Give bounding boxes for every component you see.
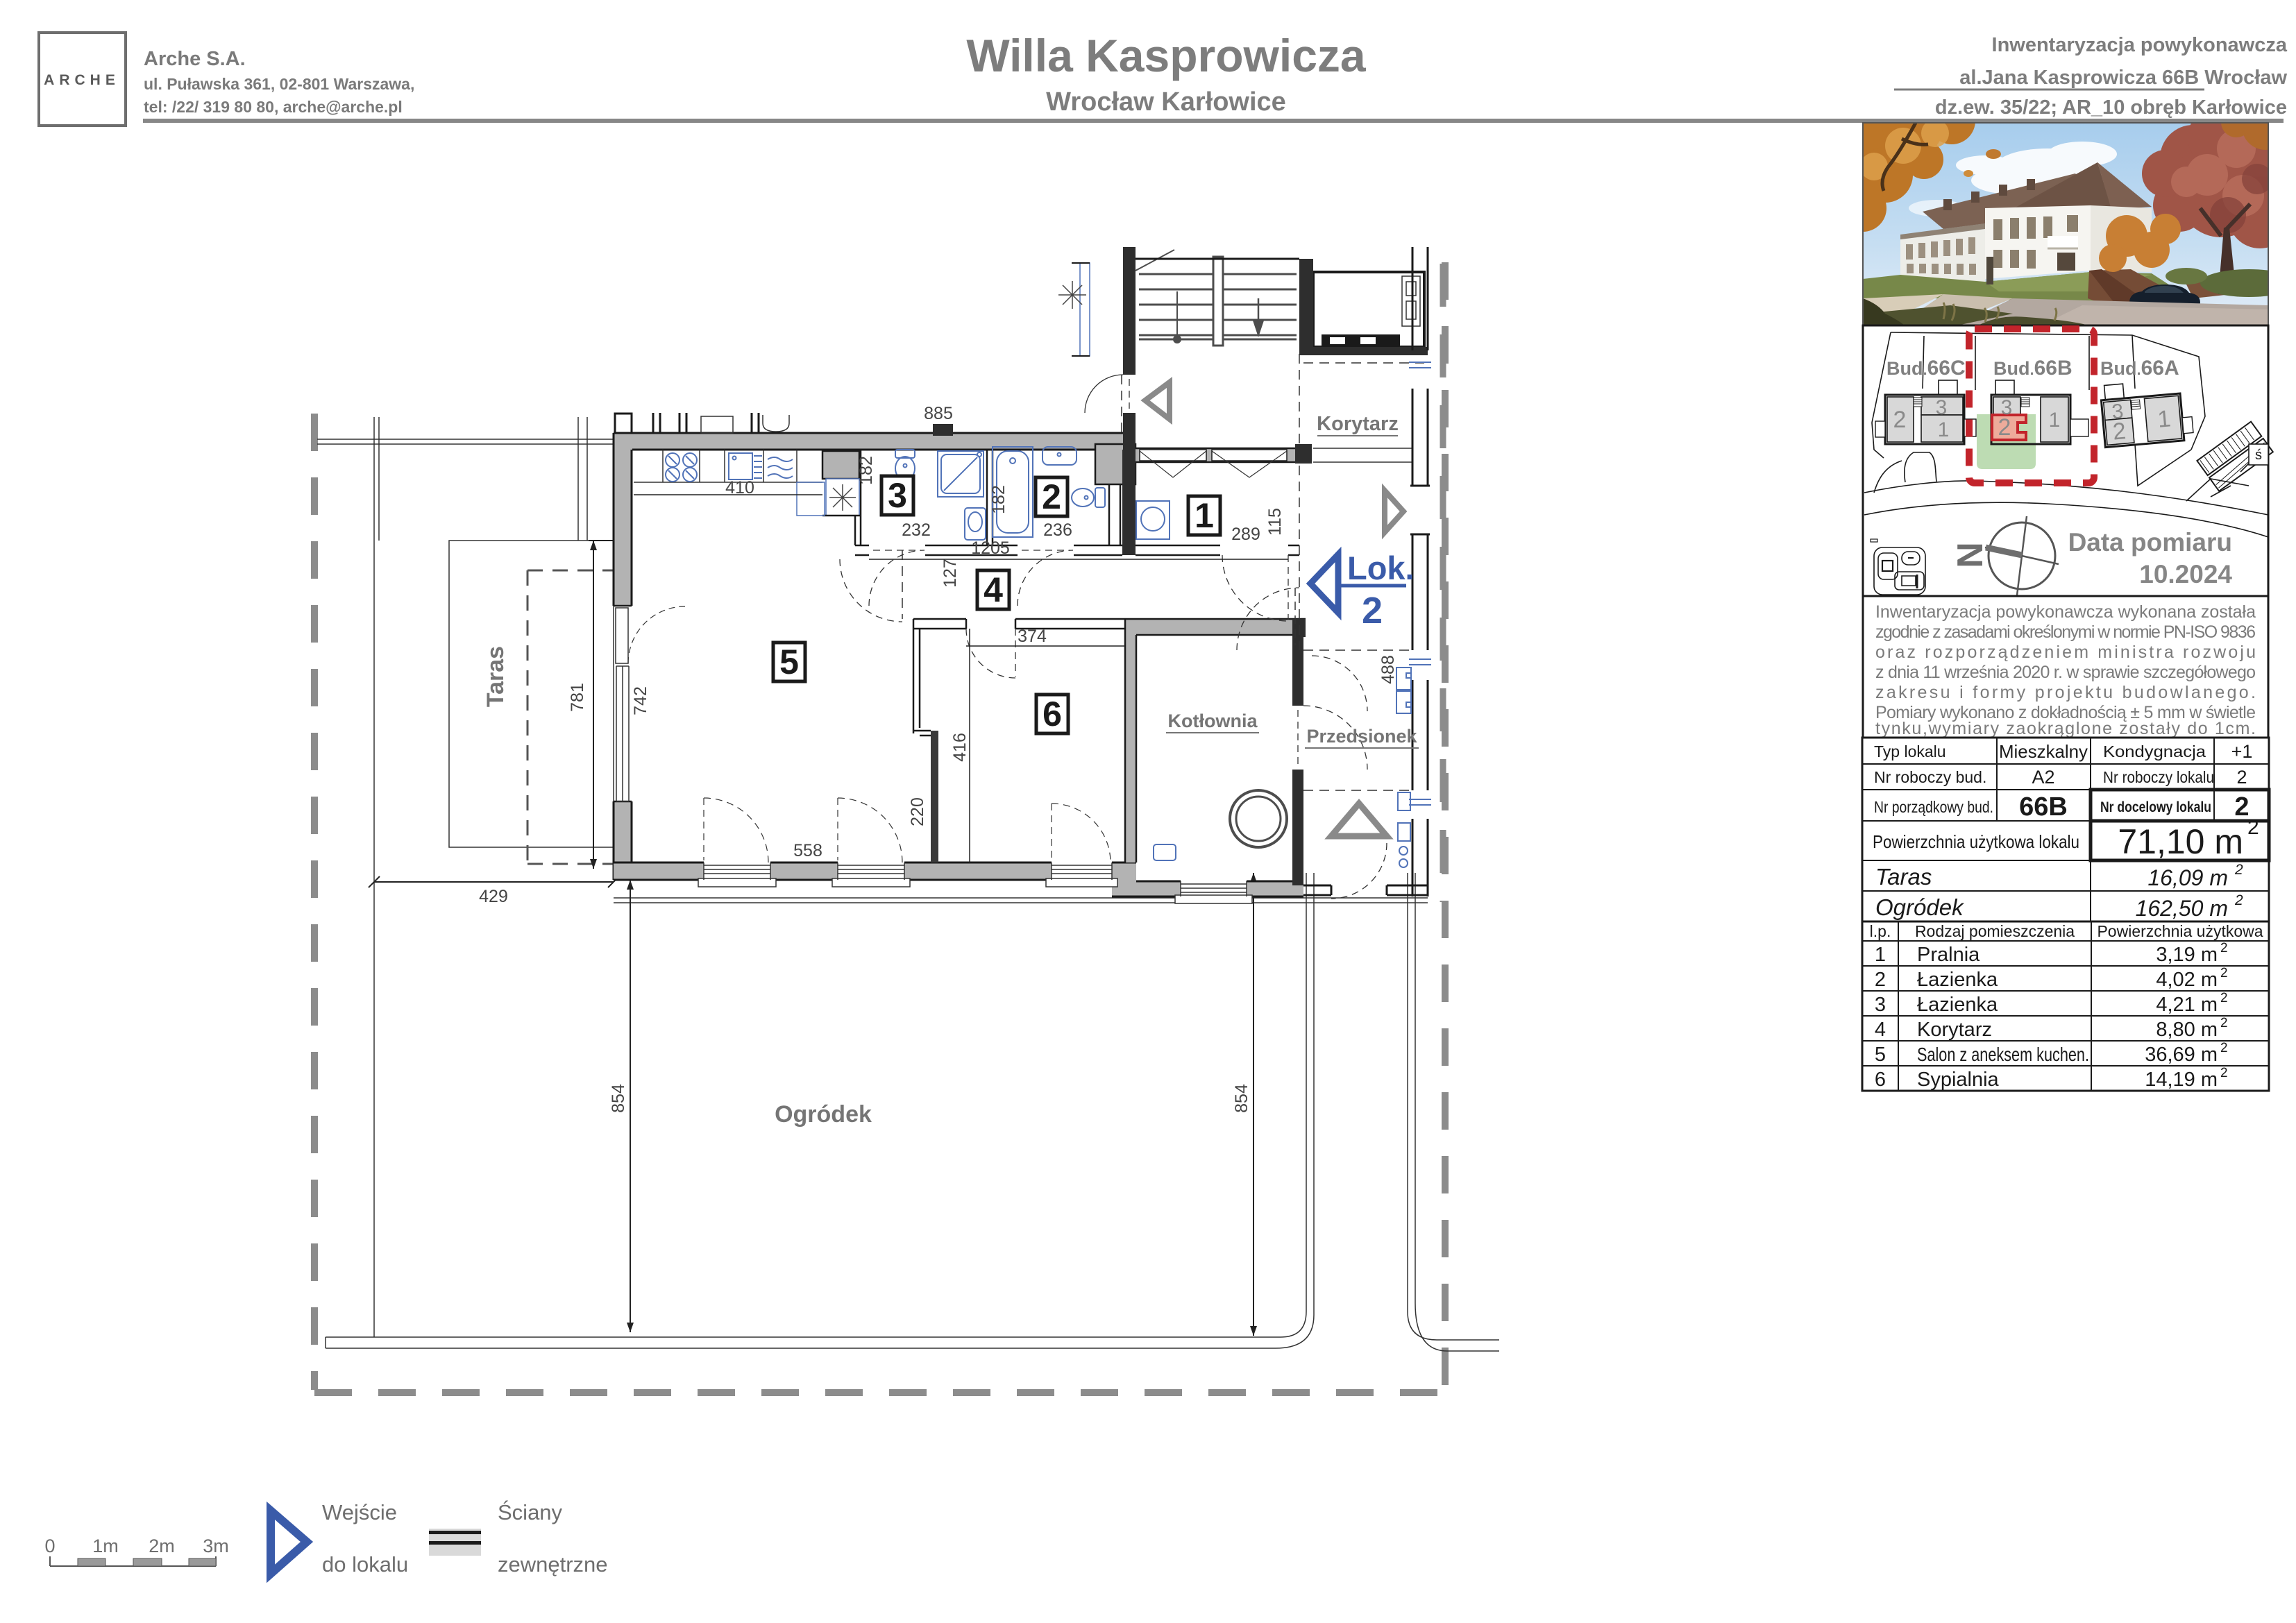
svg-text:16,09 m: 16,09 m xyxy=(2147,865,2228,890)
svg-text:Rodzaj pomieszczenia: Rodzaj pomieszczenia xyxy=(1915,922,2075,940)
svg-text:z dnia 11 września 2020 r. w s: z dnia 11 września 2020 r. w sprawie szc… xyxy=(1875,663,2256,682)
svg-text:71,10 m: 71,10 m xyxy=(2118,822,2243,861)
svg-text:Powierzchnia użytkowa: Powierzchnia użytkowa xyxy=(2097,922,2263,940)
svg-text:Nr roboczy lokalu: Nr roboczy lokalu xyxy=(2103,768,2214,786)
svg-text:66B: 66B xyxy=(2019,792,2068,822)
svg-text:1: 1 xyxy=(1938,418,1950,441)
svg-text:2: 2 xyxy=(2220,1066,2228,1080)
svg-text:1: 1 xyxy=(2049,409,2061,432)
svg-text:10.2024: 10.2024 xyxy=(2139,560,2232,588)
svg-text:ś: ś xyxy=(2255,448,2262,463)
svg-text:2: 2 xyxy=(2220,1041,2228,1055)
svg-text:Data pomiaru: Data pomiaru xyxy=(2068,528,2232,556)
svg-text:2: 2 xyxy=(2220,991,2228,1005)
svg-text:2: 2 xyxy=(2220,941,2228,955)
svg-text:zewnętrzne: zewnętrzne xyxy=(498,1552,608,1577)
svg-text:236: 236 xyxy=(1043,520,1072,540)
svg-text:Taras: Taras xyxy=(1875,864,1932,890)
svg-text:Wejście: Wejście xyxy=(322,1500,397,1524)
svg-text:Salon z aneksem kuchen.: Salon z aneksem kuchen. xyxy=(1917,1044,2089,1065)
svg-text:zgodnie z zasadami określonymi: zgodnie z zasadami określonymi w normie … xyxy=(1875,622,2256,642)
svg-text:2: 2 xyxy=(2234,862,2243,878)
svg-text:3: 3 xyxy=(1875,994,1886,1016)
svg-text:374: 374 xyxy=(1018,627,1047,646)
svg-text:0: 0 xyxy=(44,1536,55,1556)
svg-text:429: 429 xyxy=(479,887,508,906)
svg-text:oraz rozporządzeniem ministra: oraz rozporządzeniem ministra rozwoju xyxy=(1875,643,2256,662)
svg-text:Kotłownia: Kotłownia xyxy=(1168,711,1258,731)
svg-text:8,80 m: 8,80 m xyxy=(2156,1019,2218,1041)
svg-text:2: 2 xyxy=(1042,477,1061,516)
svg-text:Ogródek: Ogródek xyxy=(775,1101,872,1128)
svg-text:127: 127 xyxy=(940,559,960,588)
svg-text:Kondygnacja: Kondygnacja xyxy=(2103,742,2206,760)
svg-text:Łazienka: Łazienka xyxy=(1917,994,1998,1016)
svg-text:36,69 m: 36,69 m xyxy=(2145,1044,2218,1066)
svg-text:2: 2 xyxy=(2220,966,2228,980)
svg-text:A2: A2 xyxy=(2032,767,2054,788)
svg-text:4: 4 xyxy=(1875,1019,1886,1041)
svg-text:Ściany: Ściany xyxy=(498,1499,563,1524)
svg-text:781: 781 xyxy=(568,683,587,712)
svg-text:558: 558 xyxy=(793,841,822,860)
svg-text:Nr docelowy lokalu: Nr docelowy lokalu xyxy=(2100,799,2211,815)
svg-text:Nr roboczy bud.: Nr roboczy bud. xyxy=(1874,768,1986,786)
svg-text:3: 3 xyxy=(2001,396,2013,419)
svg-text:885: 885 xyxy=(924,404,953,423)
svg-text:3: 3 xyxy=(1936,396,1948,419)
svg-text:2: 2 xyxy=(2234,892,2243,908)
svg-text:Inwentaryzacja powykonawcza: Inwentaryzacja powykonawcza xyxy=(1992,34,2288,56)
svg-text:854: 854 xyxy=(1232,1084,1251,1113)
svg-text:182: 182 xyxy=(856,456,876,485)
svg-text:4,02 m: 4,02 m xyxy=(2156,969,2218,991)
svg-text:14,19 m: 14,19 m xyxy=(2145,1069,2218,1091)
svg-text:Lok.: Lok. xyxy=(1347,550,1415,586)
svg-text:Przedsionek: Przedsionek xyxy=(1306,726,1417,747)
svg-text:3: 3 xyxy=(888,476,907,515)
svg-text:4: 4 xyxy=(984,570,1003,609)
svg-text:5: 5 xyxy=(1875,1044,1886,1066)
svg-text:410: 410 xyxy=(725,478,754,498)
svg-text:3m: 3m xyxy=(203,1536,229,1556)
svg-text:2: 2 xyxy=(2220,1016,2228,1030)
svg-text:5: 5 xyxy=(779,643,799,681)
svg-text:Willa Kasprowicza: Willa Kasprowicza xyxy=(966,30,1367,81)
svg-text:2: 2 xyxy=(1362,590,1383,631)
svg-text:1m: 1m xyxy=(92,1536,119,1556)
svg-text:Typ lokalu: Typ lokalu xyxy=(1874,742,1946,760)
svg-text:Powierzchnia użytkowa lokalu: Powierzchnia użytkowa lokalu xyxy=(1873,831,2079,852)
svg-text:2: 2 xyxy=(1875,969,1886,991)
svg-text:N: N xyxy=(1950,542,1991,568)
svg-text:742: 742 xyxy=(631,686,650,715)
svg-text:+1: +1 xyxy=(2231,741,2253,762)
svg-text:1: 1 xyxy=(2156,405,2172,433)
svg-text:dz.ew. 35/22; AR_10 obręb Karł: dz.ew. 35/22; AR_10 obręb Karłowice xyxy=(1935,96,2287,119)
svg-text:Łazienka: Łazienka xyxy=(1917,969,1998,991)
svg-text:2m: 2m xyxy=(149,1536,175,1556)
svg-text:1205: 1205 xyxy=(971,538,1010,558)
svg-text:l.p.: l.p. xyxy=(1870,922,1891,940)
svg-text:al.Jana Kasprowicza 66B Wrocła: al.Jana Kasprowicza 66B Wrocław xyxy=(1959,67,2287,89)
svg-text:Pralnia: Pralnia xyxy=(1917,944,1980,966)
svg-text:Mieszkalny: Mieszkalny xyxy=(1999,741,2088,762)
svg-text:2: 2 xyxy=(2247,816,2259,839)
svg-text:ul. Puławska 361, 02-801 Warsz: ul. Puławska 361, 02-801 Warszawa, xyxy=(144,75,414,93)
svg-text:162,50 m: 162,50 m xyxy=(2136,896,2228,921)
svg-text:Korytarz: Korytarz xyxy=(1317,413,1399,435)
svg-text:Taras: Taras xyxy=(482,646,509,707)
svg-text:1: 1 xyxy=(1875,944,1886,966)
svg-text:220: 220 xyxy=(908,797,927,826)
svg-text:416: 416 xyxy=(950,733,970,762)
svg-text:854: 854 xyxy=(609,1084,628,1113)
svg-text:3,19 m: 3,19 m xyxy=(2156,944,2218,966)
svg-text:do lokalu: do lokalu xyxy=(322,1552,408,1577)
svg-text:Nr porządkowy bud.: Nr porządkowy bud. xyxy=(1874,798,1993,816)
svg-text:1: 1 xyxy=(1195,496,1214,535)
svg-text:Sypialnia: Sypialnia xyxy=(1917,1069,2000,1091)
svg-text:Ogródek: Ogródek xyxy=(1875,894,1964,920)
svg-text:232: 232 xyxy=(902,520,931,540)
svg-text:tynku,wymiary zaokrąglone zost: tynku,wymiary zaokrąglone zostały do 1cm… xyxy=(1875,719,2256,738)
svg-text:289: 289 xyxy=(1231,525,1260,544)
svg-text:182: 182 xyxy=(989,485,1008,514)
svg-text:ARCHE: ARCHE xyxy=(44,72,120,88)
svg-text:Arche S.A.: Arche S.A. xyxy=(144,48,246,70)
svg-text:4,21 m: 4,21 m xyxy=(2156,994,2218,1016)
svg-text:2: 2 xyxy=(2111,418,2127,445)
svg-text:2: 2 xyxy=(1893,407,1907,433)
svg-text:6: 6 xyxy=(1875,1069,1886,1091)
svg-text:tel: /22/ 319 80 80, arche@arc: tel: /22/ 319 80 80, arche@arche.pl xyxy=(144,98,403,116)
svg-text:Korytarz: Korytarz xyxy=(1917,1019,1992,1041)
svg-text:6: 6 xyxy=(1043,695,1062,733)
svg-text:115: 115 xyxy=(1265,508,1285,536)
svg-text:Inwentaryzacja powykonawcza wy: Inwentaryzacja powykonawcza wykonana zos… xyxy=(1875,602,2256,622)
svg-text:Wrocław Karłowice: Wrocław Karłowice xyxy=(1046,87,1286,117)
svg-text:2: 2 xyxy=(2236,767,2247,788)
svg-text:488: 488 xyxy=(1378,655,1398,684)
